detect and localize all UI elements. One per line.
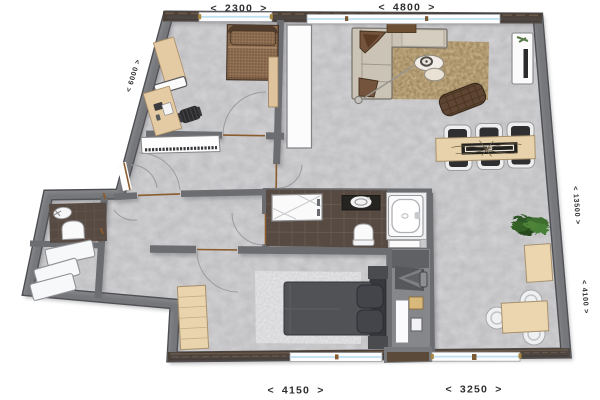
svg-text:< 4150 >: < 4150 >: [267, 385, 324, 397]
svg-text:< 2300 >: < 2300 >: [210, 3, 267, 15]
svg-text:< 13500 >: < 13500 >: [571, 186, 583, 225]
svg-text:< 4800 >: < 4800 >: [378, 2, 435, 14]
svg-text:< 6000 >: < 6000 >: [124, 58, 143, 93]
svg-text:< 3250 >: < 3250 >: [445, 384, 502, 396]
svg-text:< 4100 >: < 4100 >: [580, 280, 591, 315]
